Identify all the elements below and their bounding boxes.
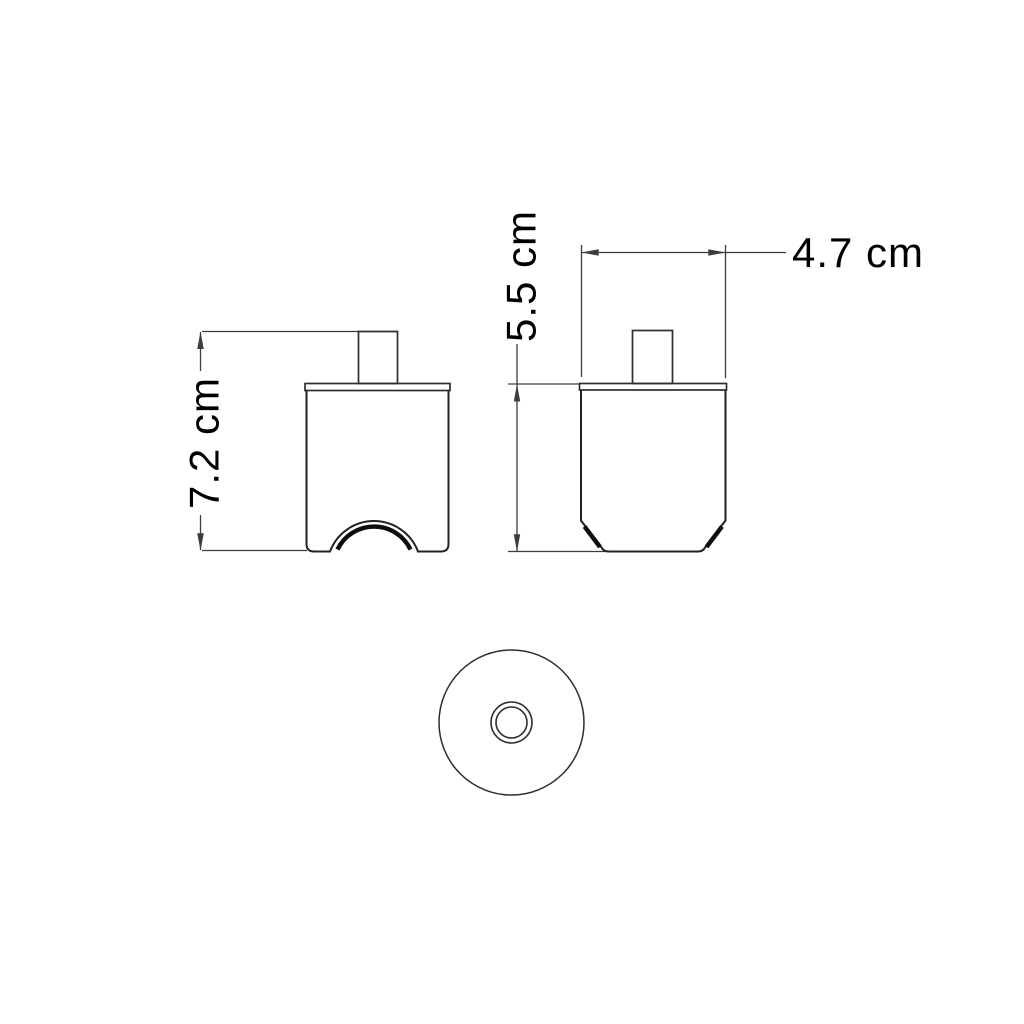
- side-chamfer-right: [707, 527, 723, 548]
- side-view: 4.7 cm 5.5 cm: [498, 210, 925, 552]
- side-body-outline: [581, 390, 726, 552]
- arrow-up-icon: [197, 332, 204, 350]
- arrow-down-icon: [514, 534, 520, 552]
- bottom-view: [439, 650, 584, 795]
- front-cable-arch: [338, 527, 411, 550]
- bottom-hole-outer-ring: [491, 702, 532, 743]
- side-collar: [580, 384, 727, 391]
- side-chamfer-left: [585, 527, 601, 548]
- arrow-down-icon: [197, 533, 204, 551]
- technical-drawing: 7.2 cm 4.7 cm 5.5 cm: [0, 0, 1024, 1024]
- bottom-outer-circle: [439, 650, 584, 795]
- front-view: 7.2 cm: [181, 332, 451, 552]
- bottom-hole-inner-ring: [496, 707, 527, 738]
- arrow-left-icon: [581, 249, 599, 255]
- arrow-up-icon: [514, 384, 520, 402]
- drawing-canvas: 7.2 cm 4.7 cm 5.5 cm: [0, 0, 1024, 1024]
- side-height-dimension-label: 5.5 cm: [498, 210, 545, 342]
- side-stem: [633, 331, 673, 384]
- front-height-dimension-label: 7.2 cm: [181, 377, 228, 509]
- arrow-right-icon: [708, 249, 726, 255]
- side-width-dimension-label: 4.7 cm: [792, 229, 924, 276]
- front-stem: [359, 332, 398, 384]
- front-collar: [305, 384, 450, 391]
